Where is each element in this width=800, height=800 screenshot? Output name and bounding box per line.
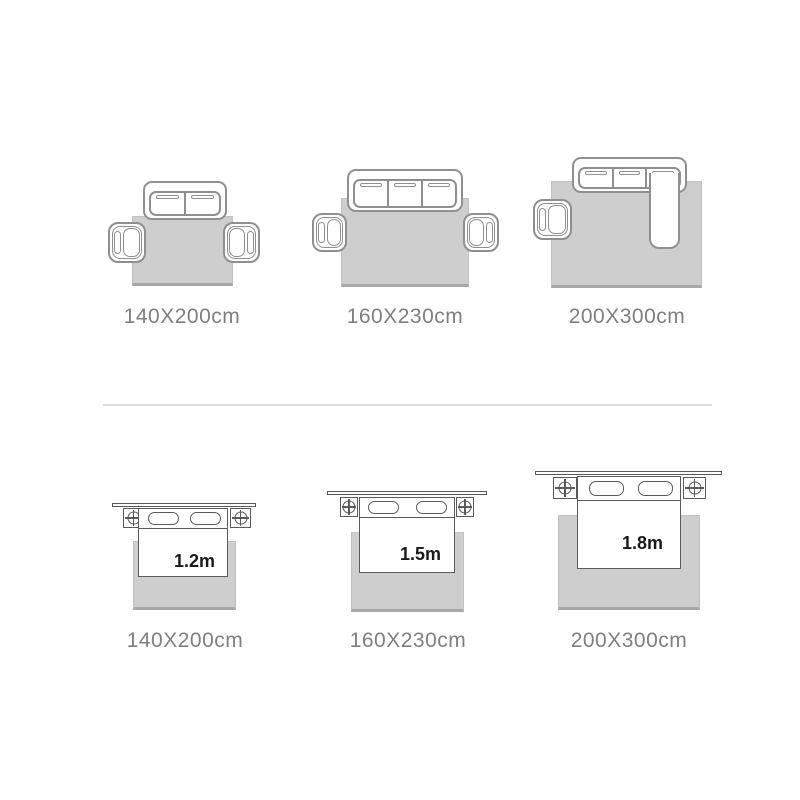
pillow-icon: [589, 481, 624, 496]
cushion-seam-icon: [394, 183, 416, 187]
lamp-cross-line: [564, 479, 566, 497]
armchair-seat: [229, 228, 245, 257]
pillow-icon: [638, 481, 673, 496]
armchair-back-cushion: [247, 231, 254, 254]
rug-size-guide-image: 140X200cm 160X230cm: [0, 0, 800, 800]
bedroom-diagram-160x230: 1.5m 160X230cm: [325, 488, 490, 653]
pillow-icon: [416, 501, 447, 514]
armchair-icon: [312, 213, 347, 252]
sofa-seats: [353, 179, 457, 208]
armchair-seat: [123, 228, 140, 257]
bed-width-label: 1.8m: [622, 534, 663, 552]
armchair-seat: [327, 219, 341, 246]
armchair-seat: [548, 205, 566, 234]
bed-width-label: 1.5m: [400, 545, 441, 563]
chaise-lounge-icon: [649, 173, 680, 249]
nightstand-icon: [456, 497, 474, 517]
sofa-cushion: [421, 181, 455, 206]
headboard-icon: [112, 503, 256, 507]
sofa-cushion: [355, 181, 387, 206]
rug-icon: [132, 216, 233, 286]
armchair-icon: [223, 222, 260, 263]
sofa-cushion: [184, 193, 219, 214]
three-seat-sofa-icon: [347, 169, 463, 212]
headboard-icon: [327, 491, 487, 495]
sofa-seats: [149, 191, 221, 216]
bed-icon: 1.5m: [359, 518, 455, 573]
sofa-cushion: [612, 169, 646, 187]
bed-head-section: [577, 476, 681, 501]
rug-size-label: 140X200cm: [82, 305, 282, 329]
lamp-cross-line: [240, 510, 242, 526]
bed-head-section: [359, 497, 455, 518]
sofa-cushion: [151, 193, 184, 214]
headboard-icon: [535, 471, 722, 475]
cushion-seam-icon: [428, 183, 450, 187]
nightstand-icon: [340, 497, 358, 517]
pillow-icon: [148, 512, 179, 525]
armchair-back-cushion: [486, 222, 493, 243]
living-room-diagram-160x230: 160X230cm: [305, 155, 505, 330]
cushion-seam-icon: [619, 171, 641, 175]
lamp-cross-line: [133, 510, 135, 526]
bed-width-label: 1.2m: [174, 552, 215, 570]
sofa-cushion: [580, 169, 612, 187]
section-divider: [103, 404, 712, 406]
cushion-seam-icon: [585, 171, 607, 175]
nightstand-icon: [683, 477, 706, 499]
rug-size-label: 140X200cm: [85, 629, 285, 653]
nightstand-icon: [553, 477, 577, 499]
armchair-icon: [463, 213, 499, 252]
rug-size-label: 200X300cm: [529, 629, 729, 653]
sofa-cushion: [387, 181, 421, 206]
lamp-cross-line: [694, 479, 696, 497]
bed-head-section: [138, 508, 228, 529]
living-room-diagram-200x300: 200X300cm: [525, 145, 725, 330]
pillow-icon: [368, 501, 399, 514]
lamp-cross-line: [348, 499, 350, 515]
cushion-seam-icon: [156, 195, 178, 199]
rug-size-label: 200X300cm: [527, 305, 727, 329]
rug-size-label: 160X230cm: [308, 629, 508, 653]
cushion-seam-icon: [360, 183, 382, 187]
armchair-icon: [108, 222, 146, 263]
pillow-icon: [190, 512, 221, 525]
bed-icon: 1.8m: [577, 501, 681, 569]
armchair-seat: [469, 219, 484, 246]
two-seat-sofa-icon: [143, 181, 227, 220]
living-room-diagram-140x200: 140X200cm: [100, 155, 270, 330]
lamp-cross-line: [464, 499, 466, 515]
rug-size-label: 160X230cm: [305, 305, 505, 329]
armchair-back-cushion: [318, 222, 325, 243]
armchair-icon: [533, 199, 572, 240]
bedroom-diagram-200x300: 1.8m 200X300cm: [533, 466, 725, 656]
armchair-back-cushion: [539, 208, 546, 231]
nightstand-icon: [230, 508, 251, 528]
armchair-back-cushion: [114, 231, 121, 254]
bed-icon: 1.2m: [138, 529, 228, 577]
bedroom-diagram-140x200: 1.2m 140X200cm: [110, 500, 260, 650]
cushion-seam-icon: [191, 195, 213, 199]
